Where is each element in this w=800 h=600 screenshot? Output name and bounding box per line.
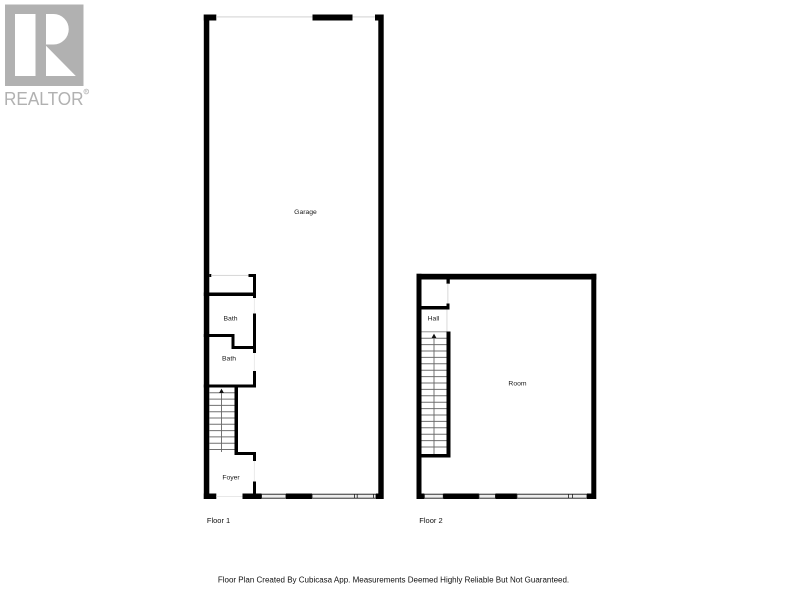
svg-text:Foyer: Foyer (222, 475, 240, 482)
svg-text:Bath: Bath (224, 316, 238, 323)
svg-text:Hall: Hall (428, 316, 440, 323)
svg-text:Garage: Garage (294, 209, 317, 216)
svg-text:Floor 2: Floor 2 (419, 516, 442, 525)
svg-text:Bath: Bath (222, 356, 236, 363)
svg-text:R: R (85, 89, 88, 94)
svg-text:Room: Room (508, 381, 526, 388)
svg-text:Floor Plan Created By Cubicasa: Floor Plan Created By Cubicasa App. Meas… (218, 576, 569, 585)
svg-text:Floor 1: Floor 1 (207, 516, 230, 525)
svg-text:REALTOR: REALTOR (4, 89, 84, 109)
